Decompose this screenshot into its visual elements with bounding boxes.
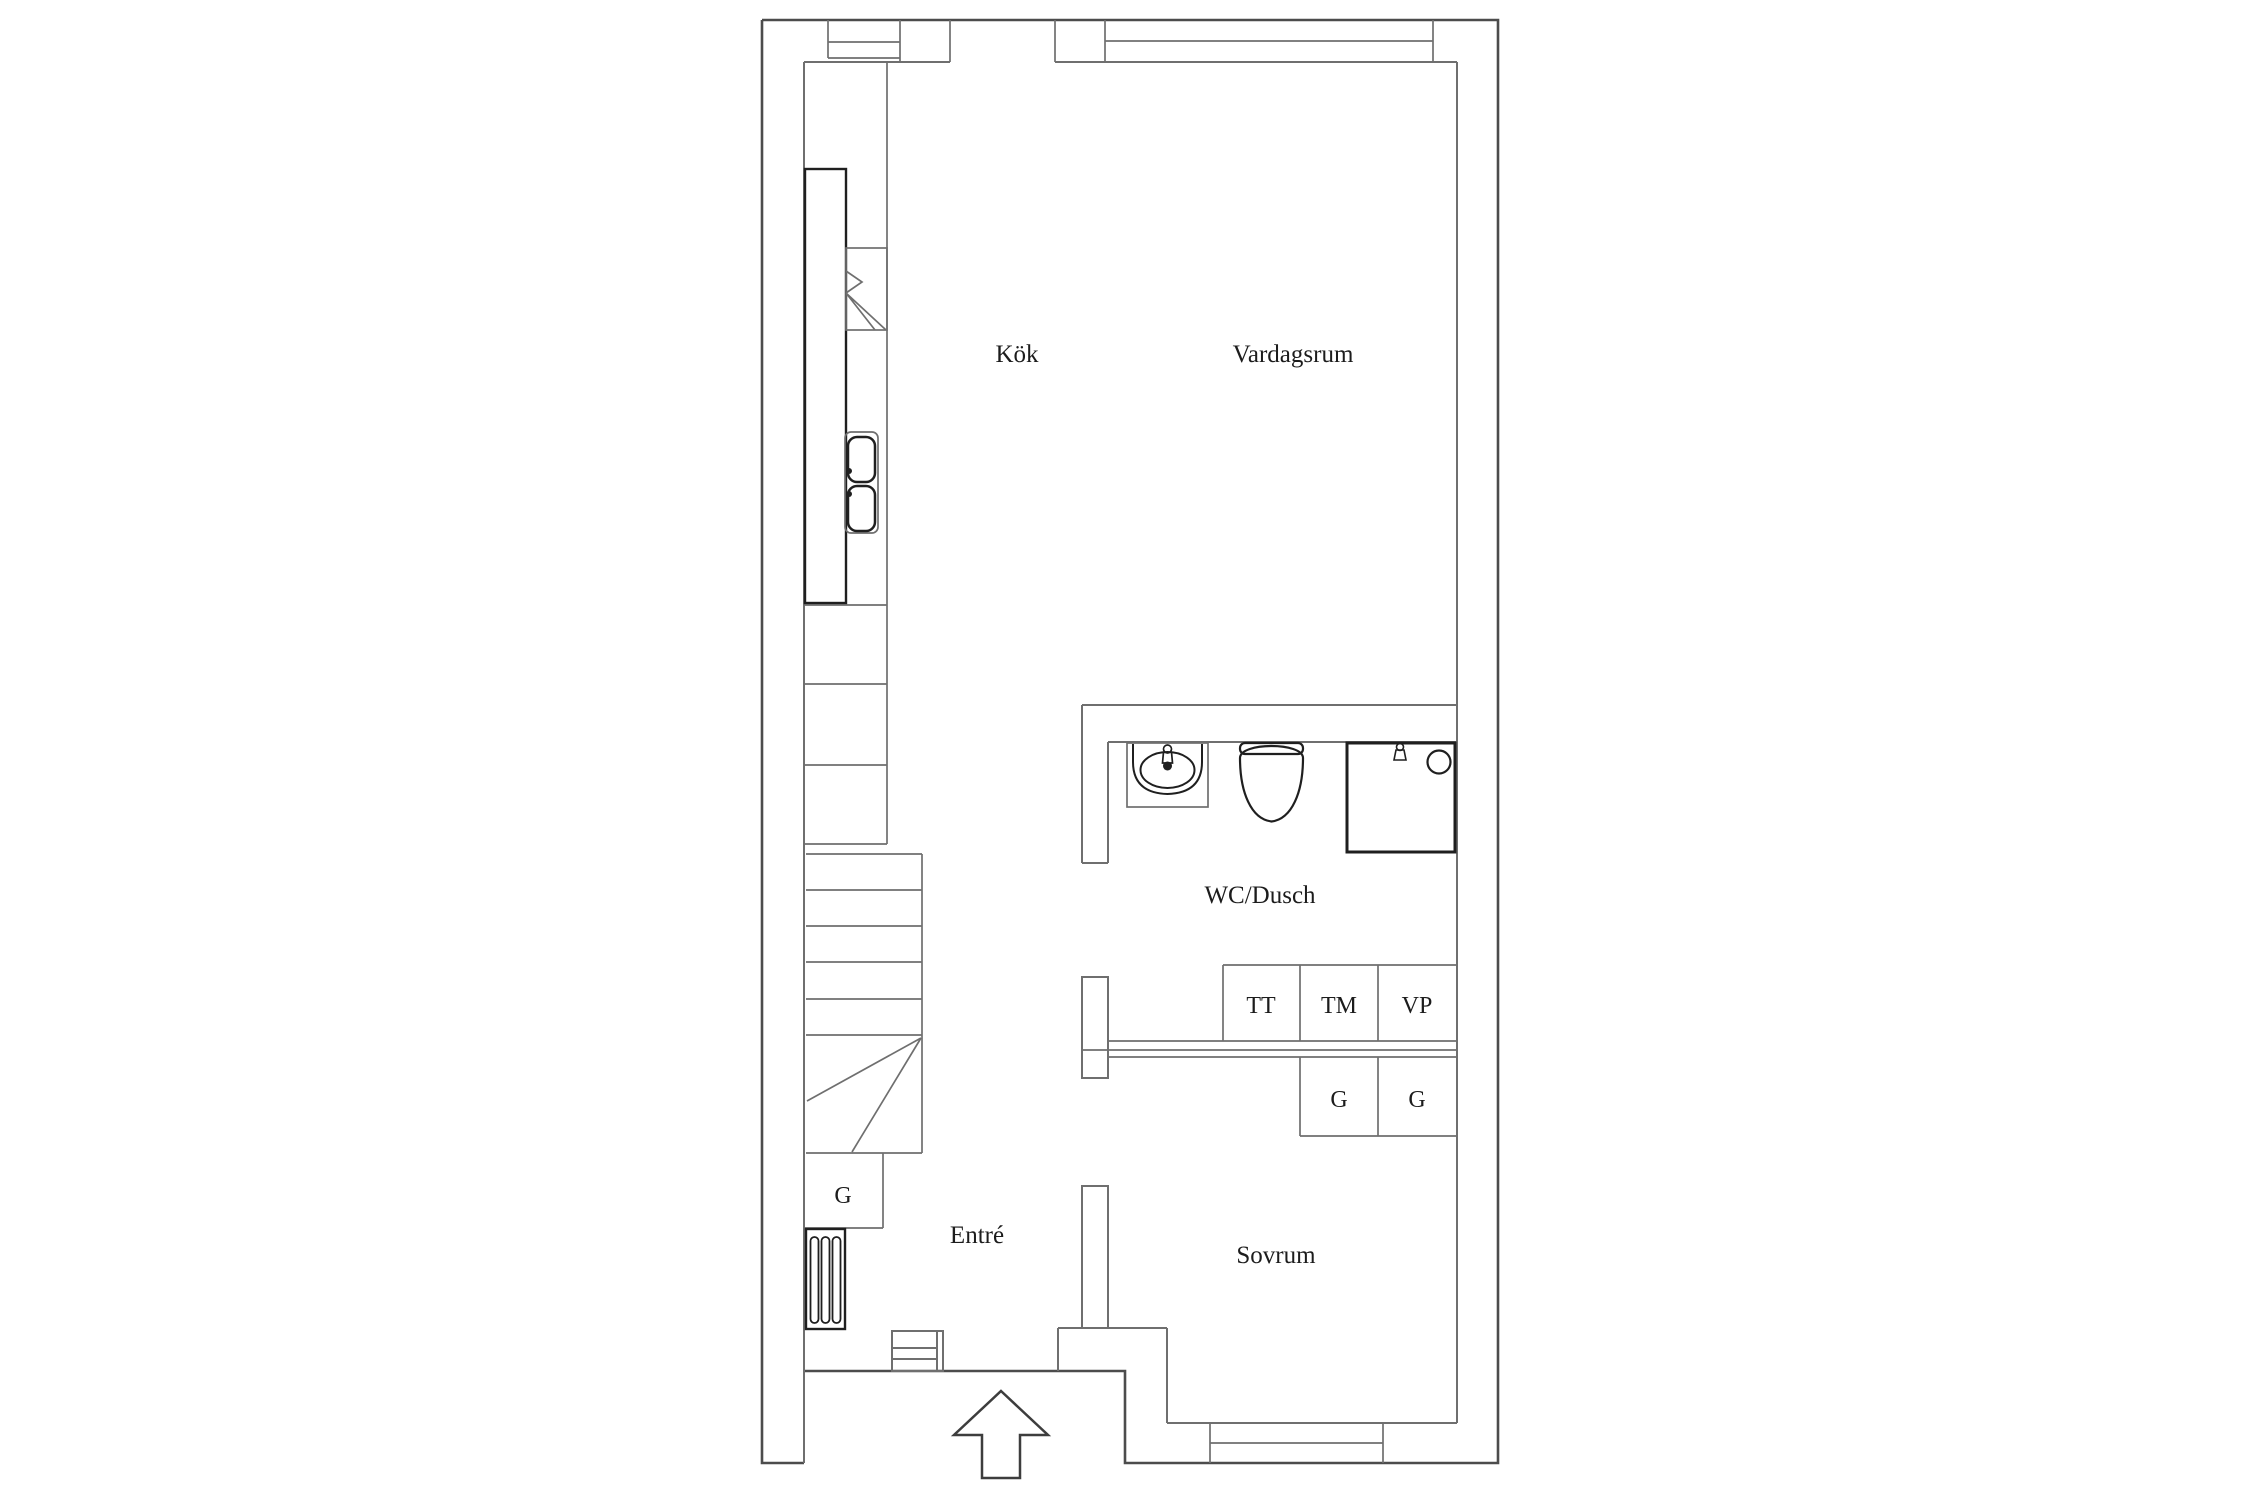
bedroom-window-icon xyxy=(1210,1423,1383,1463)
bedroom-closet-right-label: G xyxy=(1408,1087,1425,1113)
kitchen-sink-basin-top xyxy=(848,437,875,482)
inner-wall-faces xyxy=(804,62,1457,1463)
entry-door-icon xyxy=(892,1331,943,1371)
stairs-steps xyxy=(806,854,922,1153)
radiator-slat-1 xyxy=(811,1237,819,1323)
toilet-bowl xyxy=(1240,746,1303,822)
bedroom-wall-pier xyxy=(1058,1328,1167,1423)
bathroom-label: WC/Dusch xyxy=(1204,882,1316,909)
floor-plan: Kök Vardagsrum WC/Dusch Entré Sovrum TT … xyxy=(0,0,2250,1500)
bedroom-partition-wall xyxy=(1082,1186,1108,1328)
entry-door-frame xyxy=(892,1331,943,1371)
bedroom-closet-left-label: G xyxy=(1330,1087,1347,1113)
bathroom-south-wall-lines xyxy=(1082,1041,1457,1057)
kitchen-label: Kök xyxy=(995,341,1039,368)
bathroom-north-wall xyxy=(1082,705,1457,863)
entry-arrow-icon xyxy=(954,1391,1048,1478)
radiator-slat-3 xyxy=(833,1237,841,1323)
living-room-label: Vardagsrum xyxy=(1233,341,1354,368)
entry-door-threshold-lines xyxy=(892,1331,937,1371)
shower-icon xyxy=(1347,743,1455,852)
radiator-frame xyxy=(806,1229,845,1329)
washbasin-faucet-spout xyxy=(1163,762,1172,771)
shower-drain xyxy=(1428,751,1451,774)
kitchen-counter xyxy=(805,169,846,603)
water-heater-label: VP xyxy=(1402,993,1433,1019)
kitchen-sink-icon xyxy=(845,432,878,533)
radiator-icon xyxy=(806,1229,845,1329)
stairs-icon xyxy=(806,854,922,1153)
kitchen-sink-tap-top xyxy=(846,468,852,474)
kitchen-sink-tap-bottom xyxy=(846,491,852,497)
stove-icon-marks xyxy=(846,271,886,330)
stairs-winder-lines xyxy=(807,1038,921,1152)
hall-wall-stub xyxy=(1082,977,1108,1078)
entrance-label: Entré xyxy=(950,1222,1004,1249)
washing-machine-label: TM xyxy=(1321,993,1357,1019)
radiator-slat-2 xyxy=(822,1237,830,1323)
shower-faucet-body xyxy=(1394,750,1406,760)
tumble-dryer-label: TT xyxy=(1246,993,1276,1019)
entrance-closet-label: G xyxy=(834,1183,851,1209)
washbasin-icon xyxy=(1127,743,1208,807)
bedroom-label: Sovrum xyxy=(1236,1242,1316,1269)
floor-plan-page: Kök Vardagsrum WC/Dusch Entré Sovrum TT … xyxy=(0,0,2250,1500)
kitchen-sink-basin-bottom xyxy=(848,486,875,531)
toilet-icon xyxy=(1240,743,1303,822)
bedroom-closet-boxes xyxy=(1300,1057,1457,1136)
